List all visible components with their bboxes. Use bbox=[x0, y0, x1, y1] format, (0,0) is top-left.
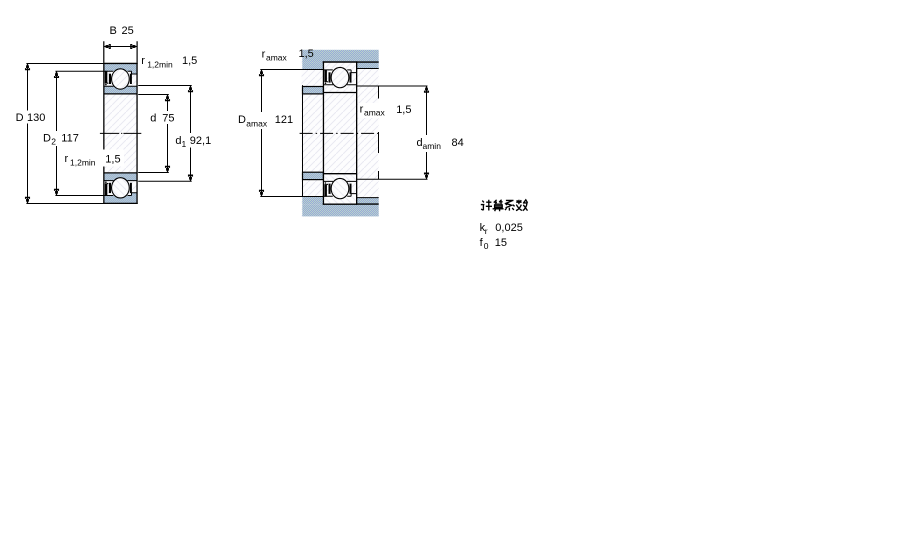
svg-text:75: 75 bbox=[162, 112, 174, 124]
svg-text:1,5: 1,5 bbox=[299, 48, 314, 60]
svg-text:B: B bbox=[110, 25, 117, 37]
svg-text:1,5: 1,5 bbox=[396, 104, 411, 116]
svg-text:1,2min: 1,2min bbox=[147, 59, 173, 69]
svg-text:r: r bbox=[65, 153, 69, 165]
svg-text:121: 121 bbox=[275, 114, 293, 126]
svg-text:r: r bbox=[262, 48, 266, 60]
svg-text:25: 25 bbox=[122, 25, 134, 37]
svg-text:0,025: 0,025 bbox=[495, 222, 523, 234]
svg-text:2: 2 bbox=[51, 137, 56, 147]
svg-text:D: D bbox=[43, 132, 51, 144]
svg-text:amax: amax bbox=[266, 52, 288, 62]
svg-text:amin: amin bbox=[423, 141, 442, 151]
svg-text:r: r bbox=[485, 226, 488, 236]
svg-text:amax: amax bbox=[246, 118, 268, 128]
svg-text:D: D bbox=[238, 114, 246, 126]
svg-text:84: 84 bbox=[452, 137, 464, 149]
svg-text:1: 1 bbox=[182, 139, 187, 149]
svg-text:r: r bbox=[141, 55, 145, 67]
svg-text:1,2min: 1,2min bbox=[70, 157, 96, 167]
svg-text:D: D bbox=[16, 112, 24, 124]
svg-text:1,5: 1,5 bbox=[182, 55, 197, 67]
svg-text:117: 117 bbox=[61, 132, 79, 144]
svg-text:d: d bbox=[150, 112, 156, 124]
svg-text:0: 0 bbox=[484, 241, 489, 251]
svg-text:130: 130 bbox=[27, 112, 45, 124]
svg-text:amax: amax bbox=[364, 108, 386, 118]
svg-text:r: r bbox=[360, 103, 364, 115]
svg-text:1,5: 1,5 bbox=[105, 154, 120, 166]
svg-text:92,1: 92,1 bbox=[190, 135, 211, 147]
svg-text:15: 15 bbox=[495, 237, 507, 249]
